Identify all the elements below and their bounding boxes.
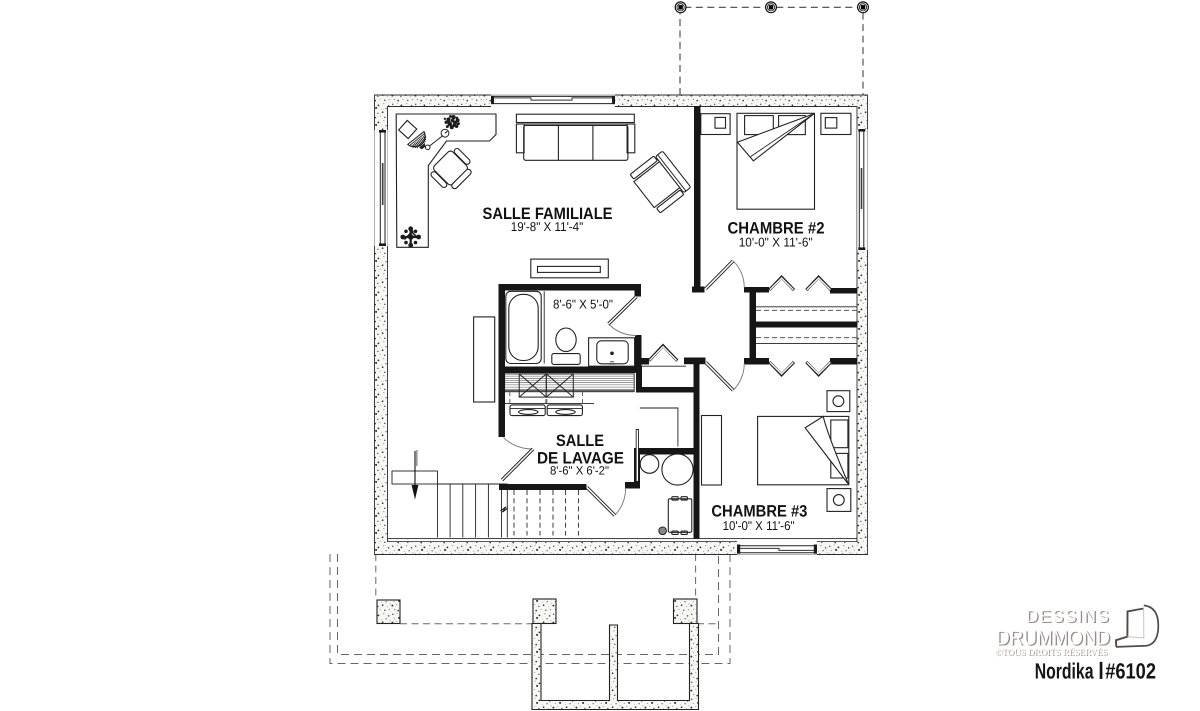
svg-text:#6102: #6102: [1105, 658, 1156, 683]
svg-text:10'-0" X 11'-6": 10'-0" X 11'-6": [739, 235, 813, 250]
svg-text:8'-6" X 5'-0": 8'-6" X 5'-0": [553, 297, 613, 312]
svg-text:19'-8" X 11'-4": 19'-8" X 11'-4": [511, 219, 584, 234]
svg-text:DRUMMOND: DRUMMOND: [996, 627, 1110, 650]
svg-text:©TOUS DROITS RÉSERVÉS: ©TOUS DROITS RÉSERVÉS: [996, 646, 1108, 658]
svg-text:SALLE: SALLE: [556, 432, 604, 450]
svg-text:8'-6" X 6'-2": 8'-6" X 6'-2": [550, 463, 609, 477]
svg-text:Nordika: Nordika: [1035, 658, 1094, 683]
svg-text:10'-0" X 11'-6": 10'-0" X 11'-6": [723, 518, 795, 533]
svg-text:DESSINS: DESSINS: [1026, 606, 1110, 626]
